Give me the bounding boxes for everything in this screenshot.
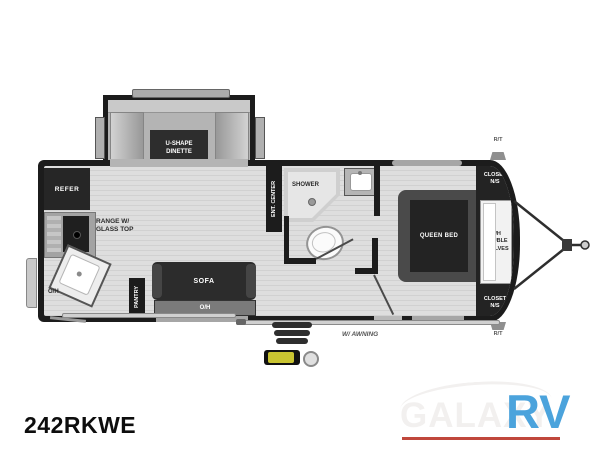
model-number: 242RKWE bbox=[24, 412, 136, 439]
closet-bottom-label: CLOSET N/S bbox=[476, 296, 514, 310]
counter-drawers bbox=[47, 216, 61, 252]
slide-rail-right bbox=[255, 117, 265, 159]
bath-vanity bbox=[344, 168, 378, 196]
window-top bbox=[392, 160, 462, 166]
shower-label: SHOWER bbox=[292, 182, 319, 188]
shower: SHOWER bbox=[284, 168, 340, 222]
hitch-icon bbox=[512, 195, 592, 295]
logo-underline bbox=[402, 437, 560, 440]
marker-top-label: R/T bbox=[488, 137, 508, 143]
step bbox=[274, 330, 310, 336]
sofa-label: SOFA bbox=[193, 278, 214, 285]
entry-steps bbox=[272, 322, 312, 348]
awning-end-cap bbox=[236, 319, 246, 325]
slide-opening bbox=[110, 159, 248, 167]
brand-badge-fill bbox=[268, 352, 294, 363]
shelf-strip bbox=[483, 203, 496, 281]
refrigerator: REFER bbox=[44, 168, 90, 210]
double-shelves: O/H DOUBLE SHELVES bbox=[480, 200, 512, 284]
step bbox=[276, 338, 308, 344]
awning-arm-rear bbox=[62, 313, 236, 318]
step bbox=[272, 322, 312, 328]
entry-door-swing bbox=[373, 275, 394, 315]
rear-bumper-tab bbox=[26, 258, 37, 308]
sofa: SOFA bbox=[152, 262, 256, 300]
marker-bottom-label: R/T bbox=[488, 331, 508, 337]
dinette-seat-right bbox=[215, 112, 249, 164]
trailer-interior: REFER RANGE W/ GLASS TOP O/H PANTRY SOFA… bbox=[44, 166, 514, 316]
front-wardrobe-column: CLOSET N/S O/H DOUBLE SHELVES CLOSET N/S bbox=[476, 166, 514, 316]
drain-icon bbox=[308, 198, 316, 206]
dinette-slideout: U-SHAPE DINETTE bbox=[103, 95, 255, 167]
entertainment-center: ENT. CENTER bbox=[266, 166, 282, 232]
badge-circle-icon bbox=[303, 351, 319, 367]
bath-sink-icon bbox=[350, 173, 372, 191]
slide-rail-left bbox=[95, 117, 105, 159]
shower-pan bbox=[288, 172, 336, 218]
dinette-seat-left bbox=[110, 112, 144, 164]
queen-bed-mattress: QUEEN BED bbox=[410, 200, 468, 272]
dinette-slideout-floor: U-SHAPE DINETTE bbox=[108, 100, 250, 167]
bath-wall-right bbox=[374, 166, 380, 216]
bath-faucet-icon bbox=[358, 171, 362, 175]
logo-rv-text: RV bbox=[506, 384, 570, 439]
awning-label: W/ AWNING bbox=[342, 331, 378, 338]
slide-awning-lip bbox=[132, 89, 230, 98]
sofa-arm-left bbox=[152, 264, 162, 298]
bath-wall-bottom bbox=[284, 258, 316, 264]
dinette-label: U-SHAPE DINETTE bbox=[165, 141, 192, 156]
pantry-cabinet: PANTRY bbox=[129, 278, 145, 316]
sofa-overhead-label: O/H bbox=[200, 305, 211, 311]
floorplan-page: U-SHAPE DINETTE REFER RANGE W/ GLASS TOP… bbox=[0, 0, 614, 460]
refer-label: REFER bbox=[55, 186, 80, 193]
range-label: RANGE W/ GLASS TOP bbox=[96, 218, 133, 234]
sofa-arm-right bbox=[246, 264, 256, 298]
queen-bed-label: QUEEN BED bbox=[420, 233, 458, 239]
bedroom-wall-tee bbox=[355, 268, 378, 274]
bath-wall-left bbox=[284, 216, 289, 262]
burner-icon bbox=[73, 231, 81, 239]
marker-top-icon bbox=[490, 152, 506, 160]
sink-overhead-label: O/H bbox=[48, 289, 59, 295]
queen-bed-base: QUEEN BED bbox=[398, 190, 488, 282]
brand-badge-icon bbox=[264, 350, 300, 365]
toilet-seat bbox=[310, 230, 338, 256]
closet-top-label: CLOSET N/S bbox=[476, 172, 514, 186]
